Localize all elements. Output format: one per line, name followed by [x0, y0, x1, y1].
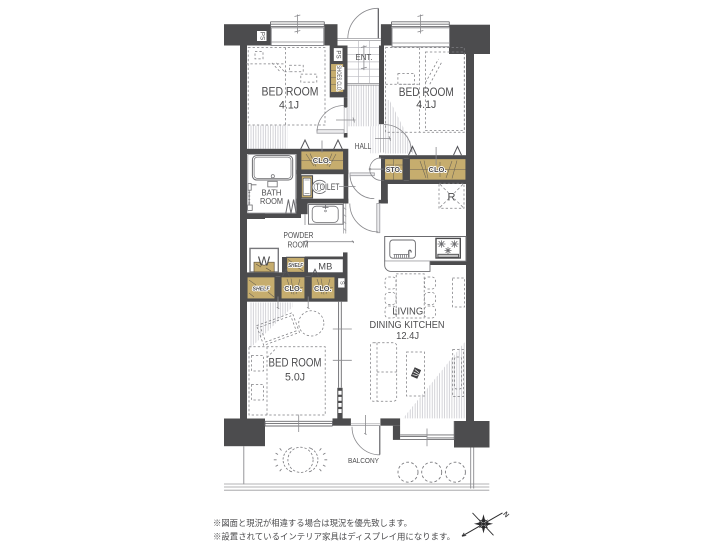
svg-text:CLO.: CLO. — [284, 284, 302, 293]
svg-text:ROOM: ROOM — [288, 240, 309, 250]
svg-text:※設置されているインテリア家具はディスプレイ用になります。: ※設置されているインテリア家具はディスプレイ用になります。 — [213, 532, 455, 542]
svg-text:4.1J: 4.1J — [279, 100, 299, 112]
svg-text:W: W — [258, 254, 271, 269]
svg-text:BED ROOM: BED ROOM — [262, 87, 319, 99]
svg-text:S: S — [338, 281, 344, 285]
svg-text:LIVING: LIVING — [392, 307, 423, 318]
svg-text:POWDER: POWDER — [284, 230, 314, 240]
svg-text:SHELF: SHELF — [288, 263, 304, 269]
svg-text:BED ROOM: BED ROOM — [399, 87, 454, 99]
svg-text:TOILET: TOILET — [316, 182, 340, 193]
svg-text:PS: PS — [258, 32, 265, 40]
svg-text:CLO.: CLO. — [314, 284, 332, 293]
svg-text:SHELF: SHELF — [253, 286, 270, 292]
svg-text:PS: PS — [335, 50, 342, 58]
svg-text:DINING KITCHEN: DINING KITCHEN — [370, 320, 445, 331]
svg-text:BED ROOM: BED ROOM — [269, 358, 322, 370]
svg-text:SHOES CLO.: SHOES CLO. — [335, 65, 342, 91]
svg-text:MB: MB — [318, 261, 332, 271]
svg-text:4.1J: 4.1J — [416, 99, 436, 111]
svg-text:CLO.: CLO. — [313, 156, 331, 165]
svg-text:※図面と現況が相違する場合は現況を優先致します。: ※図面と現況が相違する場合は現況を優先致します。 — [213, 518, 412, 528]
svg-text:5.0J: 5.0J — [285, 372, 305, 384]
svg-text:HALL: HALL — [355, 141, 372, 151]
svg-text:ROOM: ROOM — [260, 197, 283, 206]
svg-text:R: R — [448, 192, 456, 204]
svg-text:12.4J: 12.4J — [396, 331, 419, 342]
svg-text:BALCONY: BALCONY — [348, 456, 379, 465]
svg-text:STO.: STO. — [386, 165, 402, 174]
svg-text:ENT.: ENT. — [356, 53, 373, 62]
svg-text:CLO.: CLO. — [429, 165, 447, 174]
